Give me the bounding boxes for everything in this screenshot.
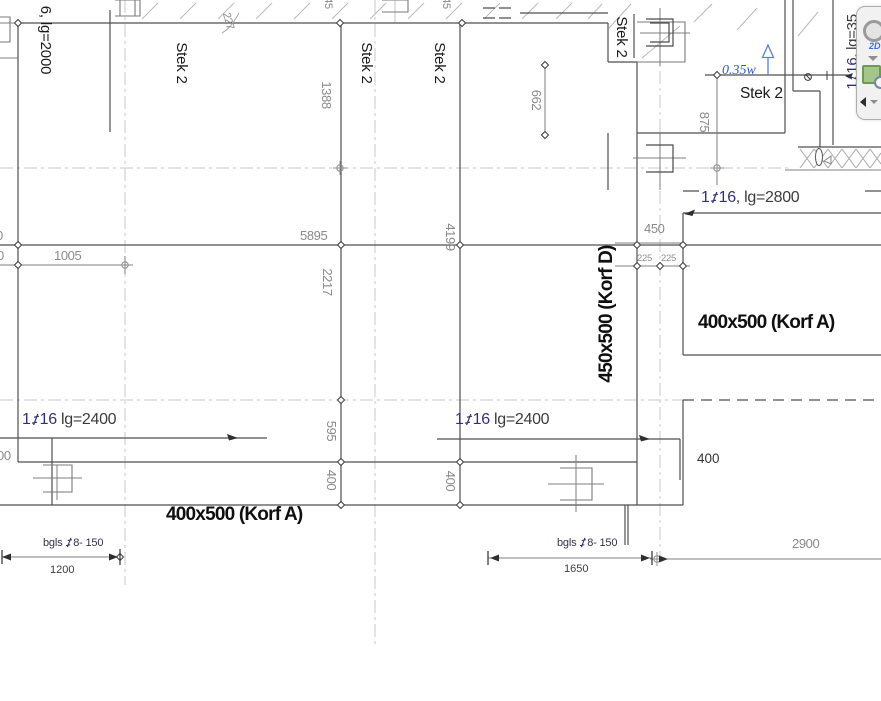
dim-2217: 2217: [319, 252, 335, 312]
dim-1200: 1200: [50, 562, 74, 578]
dim-225-left: 225: [637, 251, 652, 267]
rebar-length: lg=2400: [494, 411, 549, 428]
rebar-callout-mid: 116 lg=2400: [455, 412, 549, 428]
dim-1650: 1650: [564, 561, 588, 577]
dim-2900: 2900: [792, 536, 819, 552]
beam-label-korf-a-bottom: 400x500 (Korf A): [166, 507, 302, 523]
stek-label-1: Stek 2: [173, 33, 189, 93]
2d-mode-label[interactable]: 2D: [869, 41, 881, 51]
level-annotation: 0.35w: [722, 63, 756, 79]
stirrup-prefix: bgls: [557, 537, 576, 549]
dim-cut-0a: 0: [0, 228, 3, 244]
stek-label-2: Stek 2: [358, 33, 374, 93]
rebar-count: 1: [22, 411, 31, 428]
rebar-size: 16,: [719, 189, 740, 206]
viewer-toolbar: 2D: [856, 6, 881, 120]
arrow-left-icon[interactable]: [860, 97, 866, 107]
dim-450: 450: [644, 221, 665, 237]
dim-1388: 1388: [318, 65, 334, 125]
rebar-count: 1: [701, 189, 710, 206]
dim-cut-45a: 45: [320, 0, 336, 13]
rebar-size: 16: [40, 411, 57, 428]
stirrup-spec: 8- 150: [73, 537, 103, 549]
stirrup-prefix: bgls: [43, 537, 62, 549]
magnifier-icon[interactable]: [863, 20, 881, 42]
grid-centerlines: [0, 0, 792, 645]
drawing-linework: [0, 0, 881, 701]
dim-875: 875: [696, 92, 712, 152]
stek-label-3: Stek 2: [431, 33, 447, 93]
diameter-icon: [464, 413, 473, 426]
stirrup-spec: 8- 150: [587, 537, 617, 549]
dim-1005: 1005: [54, 248, 81, 264]
rebar-slot-symbol: [816, 149, 832, 166]
dim-4199: 4199: [442, 207, 458, 267]
wall-hatch-bottom-right: [800, 149, 881, 168]
dim-225-right: 225: [661, 251, 676, 267]
stirrup-callout-left: bgls 8- 150: [43, 535, 103, 551]
stek-label-4: Stek 2: [613, 7, 629, 67]
rebar-callout-left: 116 lg=2400: [22, 412, 116, 428]
rebar-callout-right: 116, lg=2800: [701, 190, 799, 206]
wall-hatch-top: [142, 3, 818, 58]
level-circle-marker: [805, 71, 827, 80]
beam-label-korf-a-right: 400x500 (Korf A): [698, 315, 834, 331]
rebar-count: 1: [455, 411, 464, 428]
stek-label-5: Stek 2: [740, 86, 783, 102]
beam-label-korf-d: 450x500 (Korf D): [599, 219, 615, 409]
dim-cut-00: 00: [0, 448, 11, 464]
dim-5895: 5895: [300, 228, 327, 244]
cad-plan-view: 6, lg=2000 Stek 2 Stek 2 Stek 2 Stek 2 S…: [0, 0, 881, 701]
dim-400-dark: 400: [697, 451, 720, 467]
dim-400-left: 400: [323, 450, 339, 510]
rebar-callout-lg2000: 6, lg=2000: [37, 0, 53, 90]
rebar-length: lg=2400: [61, 411, 116, 428]
diameter-icon: [31, 413, 40, 426]
dim-cut-0b: 0: [0, 248, 4, 264]
rebar-size: 16: [473, 411, 490, 428]
dim-400-mid: 400: [442, 451, 458, 511]
level-arrow-blue: [763, 45, 774, 75]
chevron-down-icon[interactable]: [868, 56, 878, 61]
rebar-length: lg=2800: [744, 189, 799, 206]
zoom-area-icon[interactable]: [874, 76, 881, 89]
chevron-down-icon[interactable]: [870, 100, 878, 104]
dim-cut-45b: 45: [438, 0, 454, 13]
dim-662: 662: [528, 70, 544, 130]
diameter-icon: [710, 191, 719, 204]
stirrup-callout-mid: bgls 8- 150: [557, 535, 617, 551]
